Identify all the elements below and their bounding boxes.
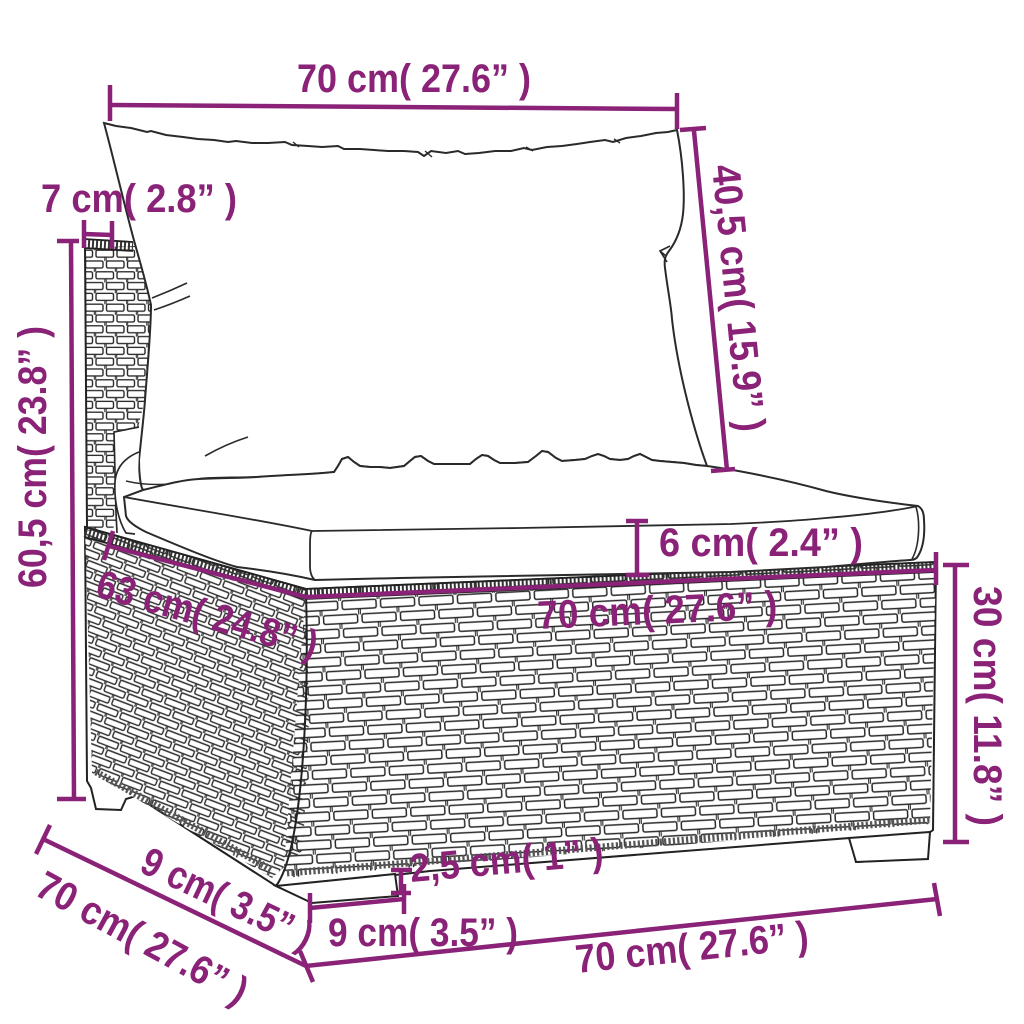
svg-text:7 cm( 2.8” ): 7 cm( 2.8” ) (41, 177, 237, 221)
svg-text:70 cm( 27.6” ): 70 cm( 27.6” ) (297, 57, 531, 101)
svg-text:40,5 cm( 15.9” ): 40,5 cm( 15.9” ) (703, 163, 773, 434)
svg-text:9 cm( 3.5” ): 9 cm( 3.5” ) (328, 911, 518, 955)
svg-text:30 cm( 11.8” ): 30 cm( 11.8” ) (965, 586, 1009, 826)
svg-text:6 cm( 2.4” ): 6 cm( 2.4” ) (659, 521, 863, 565)
svg-text:60,5 cm( 23.8” ): 60,5 cm( 23.8” ) (11, 326, 55, 588)
